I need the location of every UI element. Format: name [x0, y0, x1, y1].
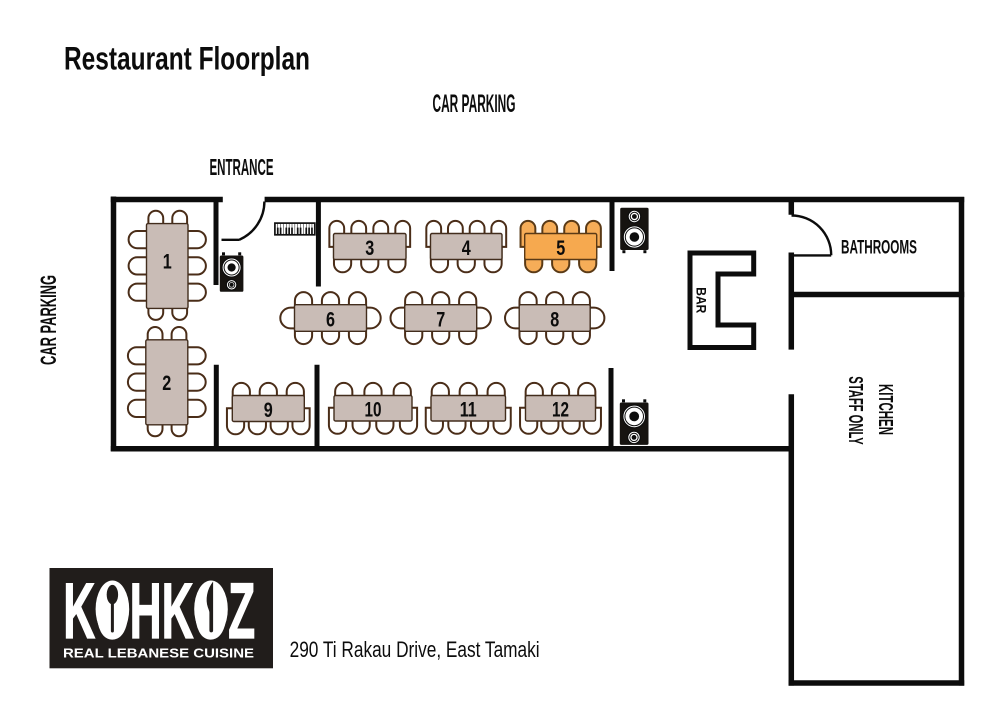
svg-text:9: 9 — [264, 399, 273, 422]
svg-text:6: 6 — [326, 308, 335, 331]
svg-text:STAFF ONLY: STAFF ONLY — [844, 376, 866, 445]
svg-text:BATHROOMS: BATHROOMS — [841, 238, 917, 259]
svg-text:BAR: BAR — [693, 287, 709, 313]
svg-text:4: 4 — [462, 237, 471, 260]
svg-text:ENTRANCE: ENTRANCE — [210, 154, 274, 180]
svg-text:3: 3 — [365, 237, 374, 260]
svg-text:CAR PARKING: CAR PARKING — [433, 90, 516, 118]
svg-text:8: 8 — [550, 308, 559, 331]
svg-text:1: 1 — [163, 251, 172, 274]
svg-text:7: 7 — [436, 308, 445, 331]
svg-text:11: 11 — [460, 399, 477, 422]
svg-text:290 Ti Rakau Drive, East Tamak: 290 Ti Rakau Drive, East Tamaki — [290, 637, 540, 662]
svg-text:KITCHEN: KITCHEN — [874, 384, 896, 435]
svg-text:Restaurant Floorplan: Restaurant Floorplan — [64, 41, 310, 77]
svg-text:12: 12 — [552, 399, 569, 422]
svg-text:2: 2 — [162, 372, 171, 395]
svg-text:5: 5 — [556, 237, 565, 260]
svg-text:CAR PARKING: CAR PARKING — [36, 275, 61, 365]
svg-text:10: 10 — [365, 399, 382, 422]
svg-text:REAL LEBANESE CUISINE: REAL LEBANESE CUISINE — [63, 646, 254, 661]
